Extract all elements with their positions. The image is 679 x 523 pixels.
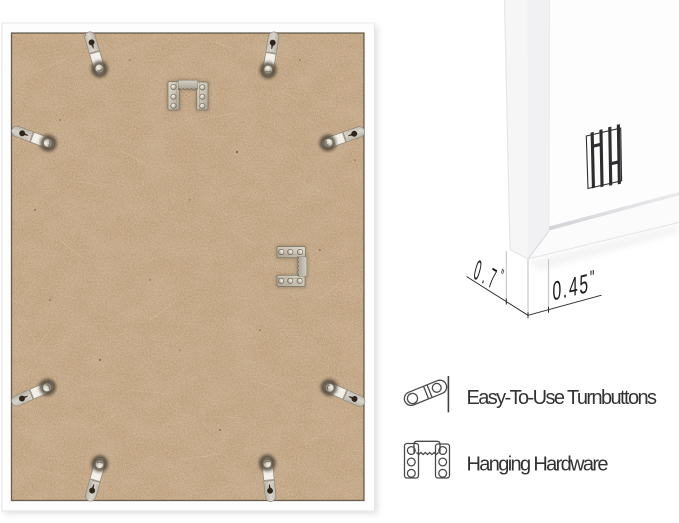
svg-text:Easy-To-Use Turnbuttons: Easy-To-Use Turnbuttons	[467, 387, 658, 409]
svg-text:Hanging Hardware: Hanging Hardware	[467, 454, 609, 476]
